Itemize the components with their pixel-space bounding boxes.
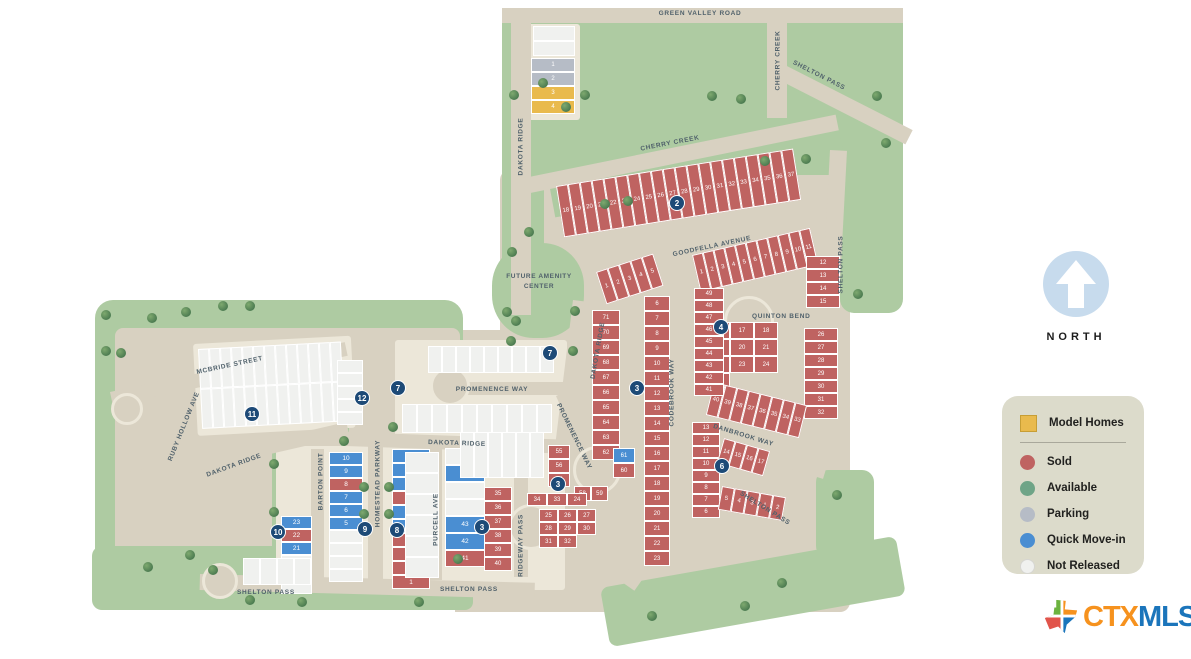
lot[interactable] [477,404,492,433]
lot[interactable] [530,432,544,478]
lot[interactable]: 7 [692,494,720,506]
lot[interactable] [417,404,432,433]
lot[interactable] [442,346,456,373]
legend-item-not-released: Not Released [1020,553,1144,579]
lot[interactable] [522,404,537,433]
lot[interactable] [498,346,512,373]
section-badge-8[interactable]: 8 [389,522,405,538]
lot[interactable] [502,432,516,478]
lot[interactable] [337,360,363,373]
lot[interactable]: 10 [329,452,363,465]
lot-group-quinton-12-15: 12131415 [806,256,840,308]
lot[interactable]: 17 [644,461,670,476]
tree-icon [853,289,863,299]
lot-group-quinton-26-32: 26272829303132 [804,328,838,419]
lot[interactable]: 40 [484,557,512,571]
lot-group-prom-fan-c: 6160 [613,448,635,478]
lot[interactable] [402,404,417,433]
lot[interactable]: 59 [591,486,608,501]
tree-icon [269,507,279,517]
tree-icon [832,490,842,500]
lot[interactable]: 7 [329,491,363,504]
legend-panel: Model Homes Sold Available Parking Quick… [1002,396,1144,574]
lot[interactable] [294,558,311,585]
lot[interactable]: 30 [577,522,596,535]
lot[interactable]: 49 [694,288,724,300]
lot[interactable]: 11 [644,371,670,386]
lot[interactable]: 24 [754,356,778,373]
lot[interactable]: 28 [804,354,838,367]
lot[interactable]: 39 [484,543,512,557]
lot[interactable] [405,452,439,473]
lot-group-quinton-41-49: 494847464544434241 [694,288,724,396]
parking-swatch-icon [1020,507,1035,522]
street-shelton-sw1: SHELTON PASS [237,589,295,596]
lot-group-mcbride-block [198,342,345,429]
logo-text-mls: MLS [1138,601,1191,634]
lot[interactable] [533,26,575,41]
lot[interactable] [329,569,363,582]
section-badge-3a[interactable]: 3 [629,380,645,396]
tree-icon [580,90,590,100]
lot[interactable]: 25 [539,509,558,522]
tree-icon [509,90,519,100]
lot[interactable]: 11 [692,446,720,458]
tree-icon [506,336,516,346]
tree-icon [507,247,517,257]
culdesac-mcbride-w [111,393,143,425]
lot[interactable]: 19 [644,491,670,506]
logo-text-ctx: CTX [1083,601,1138,634]
lot[interactable]: 1 [531,58,575,72]
lot[interactable]: 18 [754,322,778,339]
lot[interactable]: 31 [539,535,558,548]
lot[interactable]: 6 [644,296,670,311]
lot[interactable]: 30 [804,380,838,393]
street-shelton-east: SHELTON PASS [838,220,845,310]
lot[interactable]: 29 [804,367,838,380]
tree-icon [760,156,770,166]
lot-group-bottom-row [243,558,311,585]
lot[interactable] [260,558,277,585]
tree-icon [538,78,548,88]
lot[interactable] [243,558,260,585]
lot[interactable]: 9 [644,341,670,356]
section-badge-7a[interactable]: 7 [542,345,558,361]
lot[interactable] [537,404,552,433]
tree-icon [181,307,191,317]
model-homes-swatch-icon [1020,415,1037,432]
section-badge-7b[interactable]: 7 [390,380,406,396]
lot[interactable]: 20 [644,506,670,521]
legend-item-model-homes: Model Homes [1020,410,1144,436]
lot[interactable]: 6 [692,506,720,518]
street-promenence-h: PROMENENCE WAY [432,386,552,393]
tree-icon [736,94,746,104]
legend-label: Quick Move-in [1047,534,1126,546]
lot[interactable] [474,432,488,478]
tree-icon [561,102,571,112]
lot[interactable]: 60 [613,463,635,478]
tree-icon [147,313,157,323]
street-barton-point: BARTON POINT [318,437,325,527]
tree-icon [777,578,787,588]
tree-icon [359,482,369,492]
tree-icon [647,611,657,621]
legend-label: Parking [1047,508,1089,520]
tree-icon [453,554,463,564]
lot[interactable]: 66 [592,385,620,400]
tree-icon [359,509,369,519]
section-badge-3b[interactable]: 3 [550,476,566,492]
tree-icon [245,301,255,311]
lot-group-prom-west [460,432,544,478]
tree-icon [245,595,255,605]
section-badge-4[interactable]: 4 [713,319,729,335]
lot[interactable]: 15 [806,295,840,308]
legend-divider [1020,442,1126,443]
lot[interactable]: 63 [592,430,620,445]
section-badge-2[interactable]: 2 [669,195,685,211]
tree-icon [707,91,717,101]
lot[interactable]: 21 [281,542,312,555]
lot[interactable] [329,556,363,569]
lot[interactable]: 42 [694,372,724,384]
tree-icon [297,597,307,607]
lot[interactable] [484,346,498,373]
lot-group-above-model [533,26,575,56]
lot[interactable]: 14 [806,282,840,295]
lot[interactable] [456,346,470,373]
lot[interactable]: 44 [694,348,724,360]
lot[interactable]: 7 [644,311,670,326]
not-released-swatch-icon [1020,559,1035,574]
lot-group-barton: 1098765 [329,452,363,582]
lot-group-codebrook-6-23: 67891011121314151617181920212223 [644,296,670,566]
street-ridgeway-pass: RIDGEWAY PASS [518,501,525,591]
ctxmls-logo: CTX MLS [1042,598,1191,636]
lot[interactable]: 20 [730,339,754,356]
lot[interactable]: 28 [539,522,558,535]
lot-group-ridgeway-25-32: 2526272829303132 [539,509,596,548]
tree-icon [568,346,578,356]
lot[interactable]: 22 [644,536,670,551]
lot[interactable] [329,543,363,556]
lot[interactable] [428,346,442,373]
lot[interactable]: 32 [804,406,838,419]
street-quinton-bend: QUINTON BEND [752,313,810,320]
lot[interactable]: 42 [445,533,485,550]
available-swatch-icon [1020,481,1035,496]
tree-icon [218,301,228,311]
tree-icon [881,138,891,148]
lot[interactable] [488,432,502,478]
lot[interactable]: 23 [281,516,312,529]
lot[interactable]: 21 [754,339,778,356]
lot[interactable]: 32 [558,535,577,548]
street-shelton-sw2: SHELTON PASS [440,586,498,593]
street-purcell-ave: PURCELL AVE [433,475,440,565]
north-label: NORTH [1042,331,1110,343]
lot[interactable] [432,404,447,433]
lot[interactable] [470,346,484,373]
tree-icon [269,459,279,469]
lot[interactable]: 36 [484,501,512,515]
lot[interactable]: 6 [329,504,363,517]
tree-icon [101,310,111,320]
legend-item-sold: Sold [1020,449,1144,475]
community-site-map: 1234 18192021222324252627282930313233343… [0,0,1191,659]
green-top-right-strip [840,28,903,313]
lot[interactable] [277,558,294,585]
lot[interactable]: 8 [692,482,720,494]
tree-icon [502,307,512,317]
lot[interactable]: 31 [804,393,838,406]
section-badge-6[interactable]: 6 [714,458,730,474]
tree-icon [740,601,750,611]
lot[interactable] [512,346,526,373]
street-codebrook-way: CODEBROOK WAY [669,348,676,438]
section-badge-3c[interactable]: 3 [474,519,490,535]
tree-icon [801,154,811,164]
lot[interactable]: 8 [644,326,670,341]
section-badge-9[interactable]: 9 [357,521,373,537]
lot-group-dakota-62-71: 71706968676665646362 [592,310,620,460]
lot[interactable]: 41 [694,384,724,396]
section-badge-10[interactable]: 10 [270,524,286,540]
legend-label: Model Homes [1049,417,1124,429]
tree-icon [101,346,111,356]
lot[interactable] [460,432,474,478]
section-badge-11[interactable]: 11 [244,406,260,422]
lot[interactable] [507,404,522,433]
label-future-amenity-center: FUTURE AMENITY CENTER [506,272,572,293]
lot[interactable]: 55 [548,445,570,459]
lot[interactable] [447,404,462,433]
legend-label: Not Released [1047,560,1120,572]
north-arrow-icon [1042,250,1110,318]
lot[interactable]: 27 [804,341,838,354]
lot[interactable] [492,404,507,433]
lot-group-prom-south [402,404,552,433]
lot[interactable]: 64 [592,415,620,430]
lot[interactable]: 21 [644,521,670,536]
lot-group-ridgeway-34-24: 343324 [527,493,587,506]
tree-icon [414,597,424,607]
lot[interactable]: 17 [730,322,754,339]
lot[interactable]: 26 [804,328,838,341]
texas-icon [1042,598,1080,636]
north-indicator: NORTH [1042,250,1110,343]
street-green-valley-road: GREEN VALLEY ROAD [560,10,840,17]
lot[interactable] [516,432,530,478]
section-badge-12[interactable]: 12 [354,390,370,406]
tree-icon [339,436,349,446]
lot[interactable]: 10 [644,356,670,371]
quick-move-in-swatch-icon [1020,533,1035,548]
lot[interactable]: 23 [730,356,754,373]
tree-icon [384,482,394,492]
lot[interactable]: 61 [613,448,635,463]
lot[interactable] [533,41,575,56]
street-dakota-ridge-n: DAKOTA RIDGE [518,102,525,192]
lot[interactable] [526,346,540,373]
lot[interactable]: 33 [547,493,567,506]
tree-icon [143,562,153,572]
lot[interactable] [337,373,363,386]
tree-icon [600,199,610,209]
sold-swatch-icon [1020,455,1035,470]
lot[interactable]: 43 [694,360,724,372]
tree-icon [116,348,126,358]
lot[interactable] [462,404,477,433]
lot[interactable] [445,499,485,516]
tree-icon [570,306,580,316]
tree-icon [208,565,218,575]
lot[interactable]: 24 [567,493,587,506]
lot[interactable]: 13 [806,269,840,282]
lot[interactable]: 8 [329,478,363,491]
street-homestead-pkwy: HOMESTEAD PARKWAY [375,439,382,529]
lot[interactable]: 29 [558,522,577,535]
street-cherry-creek-v: CHERRY CREEK [775,16,782,106]
legend-label: Sold [1047,456,1072,468]
tree-icon [384,509,394,519]
lot[interactable]: 56 [548,459,570,473]
lot[interactable]: 48 [694,300,724,312]
lot[interactable]: 18 [644,476,670,491]
lot[interactable]: 15 [644,431,670,446]
lot[interactable]: 41 [445,550,485,567]
lot[interactable]: 12 [806,256,840,269]
lot[interactable]: 13 [644,401,670,416]
tree-icon [524,227,534,237]
lot[interactable]: 12 [644,386,670,401]
lot[interactable]: 12 [692,434,720,446]
tree-icon [388,422,398,432]
lot[interactable]: 26 [558,509,577,522]
legend-item-quick-move-in: Quick Move-in [1020,527,1144,553]
lot[interactable]: 14 [644,416,670,431]
tree-icon [872,91,882,101]
lot-group-prom-north [428,346,554,373]
lot[interactable]: 27 [577,509,596,522]
lot[interactable]: 3 [531,86,575,100]
tree-icon [623,196,633,206]
lot[interactable]: 9 [329,465,363,478]
lot[interactable]: 45 [694,336,724,348]
lot[interactable]: 35 [484,487,512,501]
lot[interactable]: 23 [644,551,670,566]
lot[interactable]: 16 [644,446,670,461]
lot[interactable] [445,482,485,499]
legend-item-parking: Parking [1020,501,1144,527]
lot[interactable]: 34 [527,493,547,506]
lot[interactable] [337,412,363,425]
tree-icon [511,316,521,326]
lot[interactable]: 65 [592,400,620,415]
tree-icon [185,550,195,560]
legend-item-available: Available [1020,475,1144,501]
legend-label: Available [1047,482,1097,494]
